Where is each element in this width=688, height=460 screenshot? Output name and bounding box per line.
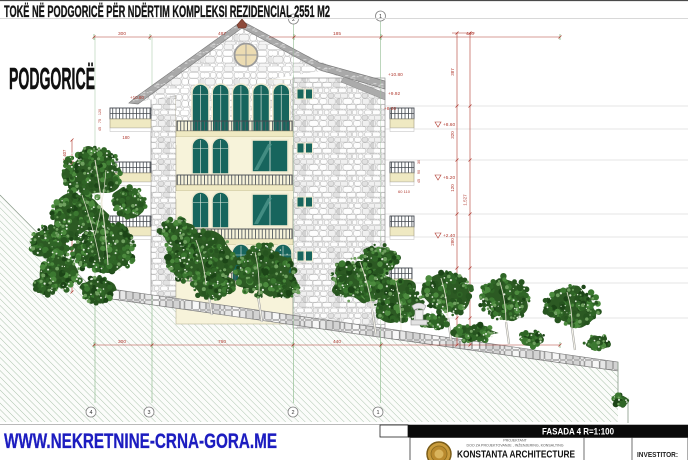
- svg-text:INVESTITOR:: INVESTITOR:: [637, 450, 678, 459]
- svg-text:60 110: 60 110: [398, 189, 411, 194]
- svg-text:PROJEKTANT: PROJEKTANT: [503, 439, 527, 443]
- svg-text:+10.80: +10.80: [388, 72, 403, 78]
- svg-text:1: 1: [379, 14, 382, 20]
- svg-text:1: 1: [376, 410, 379, 416]
- svg-text:PODGORICË: PODGORICË: [9, 62, 95, 96]
- svg-text:+8.60: +8.60: [384, 106, 396, 112]
- svg-text:3: 3: [147, 410, 150, 416]
- svg-text:2: 2: [291, 410, 294, 416]
- svg-text:KONSTANTA ARCHITECTURE: KONSTANTA ARCHITECTURE: [457, 450, 575, 460]
- svg-text:TOKË NË PODGORICË PËR NDËRTIM: TOKË NË PODGORICË PËR NDËRTIM KOMPLEKSI …: [4, 3, 330, 21]
- svg-text:+5.20: +5.20: [443, 175, 455, 181]
- svg-text:300: 300: [118, 339, 126, 345]
- svg-text:90: 90: [417, 170, 421, 174]
- svg-text:75: 75: [98, 119, 102, 123]
- svg-text:185: 185: [333, 31, 341, 37]
- svg-text:180: 180: [122, 135, 130, 140]
- svg-text:387: 387: [450, 68, 455, 76]
- svg-text:FASADA 4 R=1:100: FASADA 4 R=1:100: [542, 427, 614, 437]
- svg-text:4: 4: [89, 410, 92, 416]
- svg-text:300: 300: [118, 31, 126, 37]
- svg-text:+8.60: +8.60: [443, 122, 455, 128]
- svg-text:+9.92: +9.92: [388, 91, 400, 97]
- svg-text:DOO ZA PROJEKTOVANJE , INŽENJ: DOO ZA PROJEKTOVANJE , INŽENJERING, KONS…: [466, 443, 563, 448]
- svg-text:1.527: 1.527: [463, 194, 468, 206]
- svg-text:120: 120: [98, 109, 102, 115]
- svg-text:45: 45: [417, 179, 421, 183]
- svg-text:120: 120: [450, 184, 455, 192]
- svg-text:320: 320: [450, 131, 455, 139]
- svg-text:+10.80: +10.80: [130, 95, 144, 100]
- svg-text:440: 440: [333, 339, 341, 345]
- svg-text:45: 45: [98, 127, 102, 131]
- svg-text:+2.40: +2.40: [443, 233, 455, 239]
- svg-text:487: 487: [218, 31, 226, 37]
- svg-text:WWW.NEKRETNINE-CRNA-GORA.ME: WWW.NEKRETNINE-CRNA-GORA.ME: [4, 429, 277, 453]
- svg-text:760: 760: [218, 339, 226, 345]
- svg-text:30: 30: [417, 160, 421, 164]
